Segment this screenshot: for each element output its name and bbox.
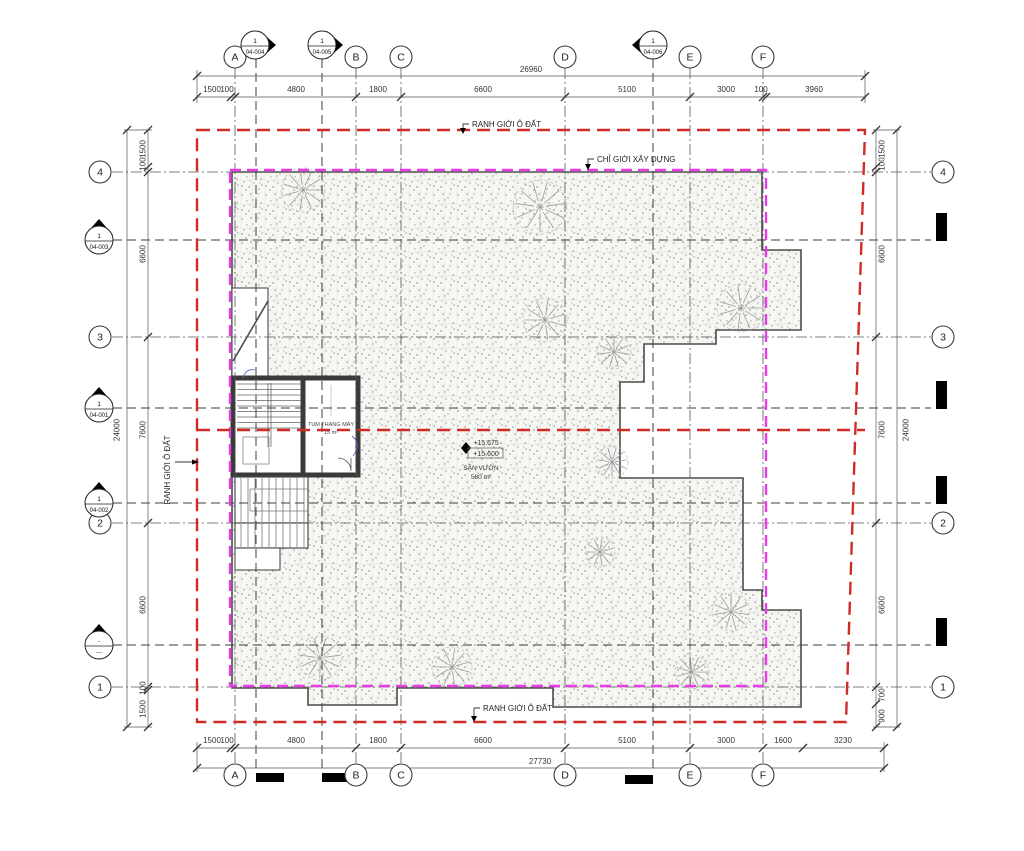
svg-text:04-001: 04-001: [90, 413, 109, 419]
section-marker-04-005: 1 04-005: [308, 31, 343, 59]
dim-label: 1800: [369, 85, 387, 94]
svg-text:1: 1: [320, 38, 324, 45]
svg-text:E: E: [686, 770, 693, 782]
svg-text:C: C: [397, 770, 405, 782]
dim-label: 6600: [139, 245, 148, 263]
grid-bubble-row-1-left: 1: [89, 676, 111, 698]
left-dimensions: 1500 100 6600 7600 6600 100 1500 24000: [113, 140, 148, 718]
svg-text:D: D: [561, 770, 569, 782]
grid-bubble-col-c-top: C: [390, 46, 412, 68]
grid-bubble-col-a-bottom: A: [224, 764, 246, 786]
svg-text:F: F: [760, 52, 766, 64]
dim-label: 7600: [139, 421, 148, 439]
dim-label: 6600: [474, 736, 492, 745]
dim-label: 1500: [203, 736, 221, 745]
svg-text:B: B: [352, 52, 359, 64]
grid-bubble-row-4-right: 4: [932, 161, 954, 183]
dim-label: 1800: [369, 736, 387, 745]
dim-label: 1500: [139, 140, 148, 158]
build-limit-label: CHỈ GIỚI XÂY DỰNG: [585, 155, 675, 170]
svg-text:F: F: [760, 770, 766, 782]
section-marker-04-006: 1 04-006: [632, 31, 667, 59]
svg-text:1: 1: [651, 38, 655, 45]
svg-text:---: ---: [96, 650, 102, 656]
floor-plan-canvas: TUM THANG MÁY 15 m²: [0, 0, 1024, 851]
svg-text:CHỈ GIỚI XÂY DỰNG: CHỈ GIỚI XÂY DỰNG: [597, 155, 675, 164]
dim-label: 5100: [618, 736, 636, 745]
svg-text:1: 1: [253, 38, 257, 45]
dim-label: 100: [139, 157, 148, 171]
section-marker-unnamed: - ---: [85, 624, 113, 659]
dim-label: 100: [220, 85, 234, 94]
grid-bubble-row-3-right: 3: [932, 326, 954, 348]
core-label: TUM THANG MÁY: [308, 421, 354, 428]
dim-label: 4800: [287, 85, 305, 94]
dim-label: 100: [220, 736, 234, 745]
svg-text:RANH GIỚI Ô ĐẤT: RANH GIỚI Ô ĐẤT: [162, 435, 172, 504]
dim-label: 3960: [805, 85, 823, 94]
grid-bubble-col-f-top: F: [752, 46, 774, 68]
dim-label: 7600: [878, 421, 887, 439]
plot-boundary-label-bottom: RANH GIỚI Ô ĐẤT: [471, 703, 552, 722]
svg-text:04-005: 04-005: [313, 50, 332, 56]
svg-text:A: A: [231, 770, 238, 782]
svg-text:4: 4: [940, 167, 946, 179]
svg-text:1: 1: [97, 682, 103, 694]
svg-text:-: -: [98, 638, 100, 645]
dim-label: 4800: [287, 736, 305, 745]
dim-label: 6600: [878, 596, 887, 614]
section-marker-04-004: 1 04-004: [241, 31, 276, 59]
svg-text:1: 1: [940, 682, 946, 694]
dim-label: 5100: [618, 85, 636, 94]
grid-bubble-col-b-top: B: [345, 46, 367, 68]
level-lower-label: +15.600: [473, 451, 499, 458]
dim-total-label: 24000: [113, 418, 122, 441]
dim-total-label: 26960: [520, 65, 543, 74]
svg-text:C: C: [397, 52, 405, 64]
dim-label: 6600: [878, 245, 887, 263]
grid-bubble-row-3-left: 3: [89, 326, 111, 348]
dim-label: 1500: [203, 85, 221, 94]
roof-cutout: [232, 288, 268, 378]
grid-bubble-col-f-bottom: F: [752, 764, 774, 786]
section-marker-04-002: 1 04-002: [85, 482, 113, 517]
plot-boundary-label-top: RANH GIỚI Ô ĐẤT: [460, 119, 541, 134]
section-marker-04-003: 1 04-003: [85, 219, 113, 254]
grid-bubble-row-2-right: 2: [932, 512, 954, 534]
svg-text:B: B: [352, 770, 359, 782]
stair-elevator-core: TUM THANG MÁY 15 m²: [233, 370, 358, 475]
dim-label: 900: [878, 709, 887, 723]
plot-boundary-label-left: RANH GIỚI Ô ĐẤT: [162, 435, 199, 504]
grid-bubble-col-e-bottom: E: [679, 764, 701, 786]
svg-text:2: 2: [940, 518, 946, 530]
dim-label: 3000: [717, 85, 735, 94]
grid-bubble-col-e-top: E: [679, 46, 701, 68]
svg-text:A: A: [231, 52, 238, 64]
svg-text:3: 3: [940, 332, 946, 344]
svg-text:04-006: 04-006: [644, 50, 663, 56]
svg-text:E: E: [686, 52, 693, 64]
grid-bubble-col-d-bottom: D: [554, 764, 576, 786]
dim-label: 6600: [474, 85, 492, 94]
svg-text:1: 1: [97, 401, 101, 408]
dim-label: 1600: [774, 736, 792, 745]
svg-text:D: D: [561, 52, 569, 64]
right-dimensions: 1500 100 6600 7600 6600 700 900 24000: [878, 140, 911, 723]
floor-plan-sheet: TUM THANG MÁY 15 m²: [0, 0, 1024, 851]
svg-text:04-002: 04-002: [90, 508, 109, 514]
svg-text:RANH GIỚI Ô ĐẤT: RANH GIỚI Ô ĐẤT: [483, 703, 552, 713]
dim-label: 1500: [139, 700, 148, 718]
dim-label: 6600: [139, 596, 148, 614]
dim-label: 3230: [834, 736, 852, 745]
grid-bubble-row-4-left: 4: [89, 161, 111, 183]
svg-text:1: 1: [97, 233, 101, 240]
svg-text:RANH GIỚI Ô ĐẤT: RANH GIỚI Ô ĐẤT: [472, 119, 541, 129]
svg-text:4: 4: [97, 167, 103, 179]
grid-bubble-row-1-right: 1: [932, 676, 954, 698]
dim-label: 3000: [717, 736, 735, 745]
dim-label: 100: [878, 157, 887, 171]
bottom-dimensions: 1500 100 4800 1800 6600 5100 3000 1600 3…: [203, 736, 852, 766]
dim-label: 100: [139, 681, 148, 695]
grid-bubble-col-c-bottom: C: [390, 764, 412, 786]
dim-total-label: 24000: [902, 418, 911, 441]
top-dimensions: 1500 100 4800 1800 6600 5100 3000 100 39…: [203, 65, 823, 94]
svg-text:3: 3: [97, 332, 103, 344]
garden-area-label: 580 m²: [471, 474, 492, 481]
grid-bubble-col-d-top: D: [554, 46, 576, 68]
dim-label: 100: [754, 85, 768, 94]
svg-text:04-003: 04-003: [90, 245, 109, 251]
svg-text:1: 1: [97, 496, 101, 503]
svg-text:2: 2: [97, 518, 103, 530]
dim-total-label: 27730: [529, 757, 552, 766]
level-upper-label: +15.675: [473, 440, 499, 447]
dim-label: 700: [878, 688, 887, 702]
dim-label: 1500: [878, 140, 887, 158]
svg-text:04-004: 04-004: [246, 50, 265, 56]
section-marker-04-001: 1 04-001: [85, 387, 113, 422]
garden-name-label: SÂN VƯỜN: [463, 463, 499, 472]
grid-bubble-col-b-bottom: B: [345, 764, 367, 786]
